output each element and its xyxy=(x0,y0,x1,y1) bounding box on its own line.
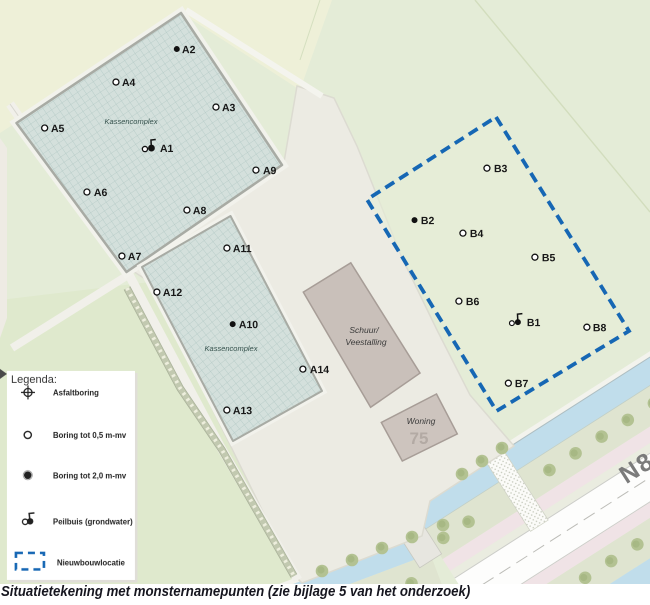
svg-text:Boring tot 2,0 m-mv: Boring tot 2,0 m-mv xyxy=(53,471,127,480)
svg-text:Nieuwbouwlocatie: Nieuwbouwlocatie xyxy=(57,558,126,567)
svg-text:Legenda:: Legenda: xyxy=(11,374,57,386)
svg-text:Boring tot 0,5 m-mv: Boring tot 0,5 m-mv xyxy=(53,431,127,440)
svg-text:Asfaltboring: Asfaltboring xyxy=(53,388,99,397)
svg-text:Peilbuis (grondwater): Peilbuis (grondwater) xyxy=(53,517,133,526)
